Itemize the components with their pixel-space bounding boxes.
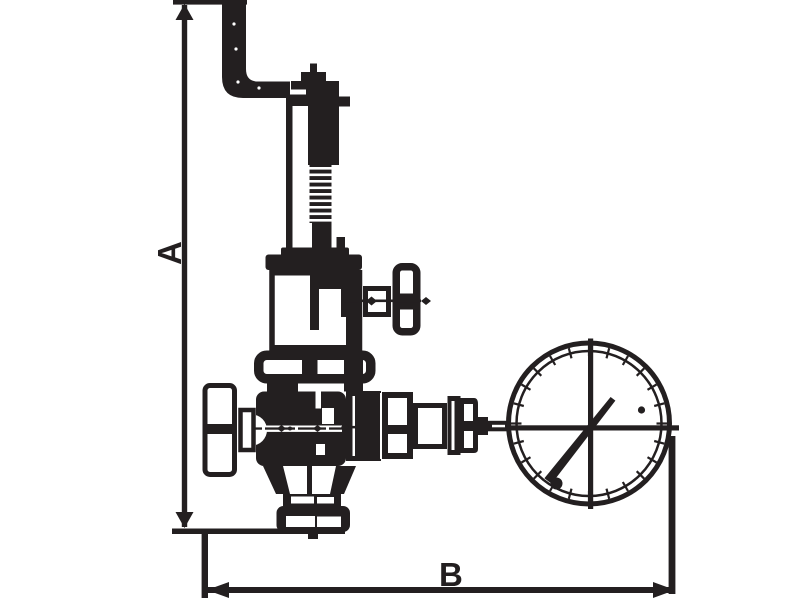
svg-text:B: B bbox=[439, 556, 463, 593]
svg-text:A: A bbox=[151, 241, 188, 265]
